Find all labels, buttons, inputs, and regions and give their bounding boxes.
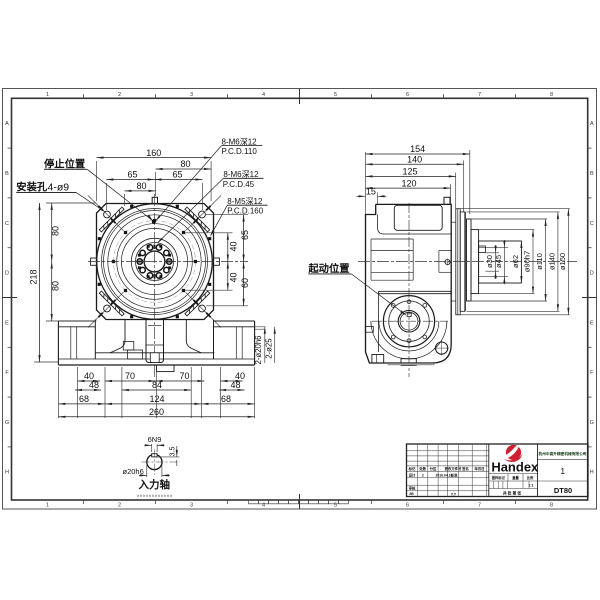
svg-text:2-ø20h6: 2-ø20h6 [254, 335, 263, 364]
svg-text:140: 140 [407, 155, 422, 165]
svg-text:ø150: ø150 [558, 253, 567, 270]
svg-text:A: A [590, 121, 594, 127]
svg-text:2: 2 [422, 474, 424, 478]
svg-text:G: G [5, 420, 9, 426]
svg-text:7: 7 [478, 503, 481, 509]
svg-text:65: 65 [240, 230, 250, 240]
svg-text:70: 70 [125, 371, 135, 381]
svg-text:48: 48 [89, 380, 99, 390]
svg-text:40: 40 [228, 272, 238, 282]
svg-text:ø110: ø110 [535, 253, 544, 270]
svg-text:65: 65 [127, 170, 137, 180]
svg-text:G: G [590, 420, 594, 426]
svg-text:分区: 分区 [430, 466, 437, 471]
svg-text:4-ø9: 4-ø9 [48, 182, 70, 194]
svg-text:安装孔: 安装孔 [16, 181, 48, 194]
svg-text:65: 65 [172, 170, 182, 180]
svg-text:起动位置: 起动位置 [307, 262, 349, 275]
svg-text:70: 70 [179, 371, 189, 381]
svg-text:8-M6深12: 8-M6深12 [223, 170, 259, 179]
svg-text:4: 4 [262, 92, 265, 98]
svg-text:F: F [5, 370, 9, 376]
svg-text:160: 160 [146, 148, 161, 158]
svg-text:处数: 处数 [418, 466, 426, 471]
svg-text:B: B [5, 171, 9, 177]
svg-text:A: A [5, 121, 9, 127]
svg-text:60: 60 [240, 278, 250, 288]
svg-text:80: 80 [51, 226, 61, 236]
svg-text:ø90h7: ø90h7 [523, 251, 532, 273]
svg-text:标记: 标记 [408, 466, 416, 471]
svg-text:84: 84 [152, 380, 162, 390]
svg-text:260: 260 [149, 407, 164, 417]
svg-text:设计: 设计 [409, 473, 416, 478]
svg-text:2: 2 [118, 503, 121, 509]
svg-text:D: D [5, 271, 9, 277]
svg-text:DT80: DT80 [554, 486, 572, 495]
svg-text:3.5: 3.5 [170, 447, 177, 457]
svg-text:8-M6深12: 8-M6深12 [222, 137, 258, 146]
svg-text:3: 3 [190, 503, 193, 509]
svg-text:154: 154 [410, 144, 425, 154]
svg-text:218: 218 [29, 269, 39, 284]
svg-text:H: H [590, 470, 594, 476]
svg-text:80: 80 [136, 181, 146, 191]
svg-text:15: 15 [366, 187, 376, 197]
svg-text:68: 68 [221, 394, 231, 404]
svg-text:8: 8 [550, 503, 553, 509]
svg-text:Y.Y: Y.Y [451, 493, 457, 497]
svg-text:P.C.D.45: P.C.D.45 [223, 180, 255, 189]
svg-text:P.C.D.160: P.C.D.160 [227, 207, 263, 216]
svg-text:B: B [590, 171, 594, 177]
svg-text:Handex: Handex [491, 460, 539, 475]
svg-text:审核: 审核 [409, 485, 416, 490]
svg-text:2: 2 [118, 92, 121, 98]
svg-text:1: 1 [46, 503, 49, 509]
svg-text:E: E [5, 320, 9, 326]
svg-text:标准: 标准 [450, 473, 458, 478]
svg-text:P.C.D.110: P.C.D.110 [222, 147, 258, 156]
svg-text:6: 6 [406, 503, 409, 509]
svg-text:6: 6 [406, 92, 409, 98]
svg-text:停止位置: 停止位置 [44, 158, 85, 171]
svg-text:年月日: 年月日 [474, 466, 484, 471]
svg-text:H: H [5, 470, 9, 476]
svg-text:7: 7 [478, 92, 481, 98]
svg-text:2-ø25: 2-ø25 [264, 338, 273, 359]
svg-text:68: 68 [79, 394, 89, 404]
svg-text:图样标记: 图样标记 [492, 475, 506, 480]
svg-text:入力轴: 入力轴 [139, 478, 171, 491]
svg-text:1: 1 [46, 92, 49, 98]
svg-text:共 张 第 张: 共 张 第 张 [503, 490, 522, 495]
svg-text:重量: 重量 [512, 475, 519, 480]
svg-text:8: 8 [550, 92, 553, 98]
svg-text:125: 125 [402, 167, 417, 177]
svg-text:80: 80 [180, 159, 190, 169]
svg-text:ø62: ø62 [511, 255, 520, 268]
svg-text:3: 3 [190, 92, 193, 98]
svg-text:6N9: 6N9 [148, 435, 162, 444]
svg-text:F: F [590, 370, 594, 376]
svg-text:C: C [590, 221, 594, 227]
svg-text:ø30: ø30 [485, 255, 494, 268]
svg-text:48: 48 [230, 380, 240, 390]
svg-text:2B: 2B [409, 492, 414, 496]
svg-text:ø45: ø45 [494, 255, 503, 268]
svg-text:杭州中高升精密机械有限公司: 杭州中高升精密机械有限公司 [538, 451, 587, 456]
svg-text:124: 124 [149, 394, 164, 404]
svg-text:1: 1 [560, 466, 565, 476]
svg-text:ø20h6: ø20h6 [123, 467, 144, 476]
svg-text:1:1: 1:1 [528, 484, 533, 488]
svg-text:8-M5深12: 8-M5深12 [227, 197, 263, 206]
svg-text:C: C [5, 221, 9, 227]
svg-text:更改文件号: 更改文件号 [445, 466, 463, 471]
svg-text:E: E [590, 320, 594, 326]
svg-text:ø140: ø140 [548, 253, 557, 270]
svg-text:D: D [590, 271, 594, 277]
svg-text:比例: 比例 [527, 475, 534, 480]
svg-text:80: 80 [51, 281, 61, 291]
svg-text:签名: 签名 [461, 466, 469, 471]
svg-text:120: 120 [401, 178, 416, 188]
svg-text:5: 5 [334, 92, 337, 98]
svg-text:40: 40 [228, 241, 238, 251]
